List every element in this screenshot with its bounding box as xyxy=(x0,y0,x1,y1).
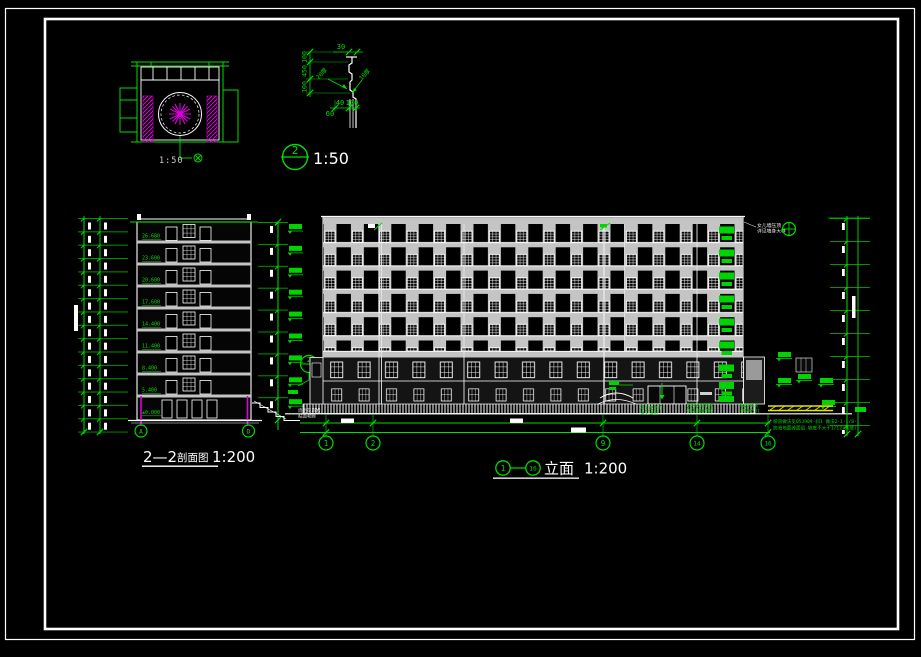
stair-core xyxy=(162,225,217,419)
molding-profile xyxy=(346,57,357,128)
left-annex xyxy=(310,358,323,405)
elevation-axis-to: 16 xyxy=(529,466,537,473)
elevation-title-scale: 1:200 xyxy=(584,460,627,478)
left-base-note-1: 烧毛花岗岩 xyxy=(298,407,321,414)
base-note-c2: 详见05J1 xyxy=(740,408,760,415)
dim-left-1: 450 xyxy=(301,65,309,77)
cad-sheet: 1:50 30 100 450 100 xyxy=(0,0,921,657)
dim-left-0: 100 xyxy=(301,51,309,63)
section-drawing: 26.680 23.600 20.600 17.600 14.400 11.40… xyxy=(128,214,318,437)
grid-bubble-9: 9 xyxy=(601,439,606,448)
section-right-dims xyxy=(258,219,304,430)
grid-bubble-14: 14 xyxy=(693,441,701,448)
level-label: 17.600 xyxy=(142,300,160,306)
dim-bottom-a: 40 xyxy=(336,99,344,107)
cad-drawing-canvas: 1:50 30 100 450 100 xyxy=(0,0,921,657)
base-note-b1: 水泥砂浆坡道 xyxy=(686,402,713,409)
parapet-note: 女儿墙压顶 详见墙身大样 xyxy=(744,222,796,236)
dim-bottom-b: 100 xyxy=(346,99,359,107)
dim-left-2: 100 xyxy=(301,81,309,93)
base-note-c1: 散水做法 xyxy=(740,402,758,409)
molding-dims: 30 100 450 100 40 100 60 20厚 10厚 xyxy=(301,43,373,118)
parapet-note-line2: 详见墙身大样 xyxy=(757,228,786,235)
level-label: ±0.000 xyxy=(142,410,160,416)
hatch-band-right xyxy=(207,96,217,142)
dim-text-blob xyxy=(571,428,586,433)
level-label: 14.400 xyxy=(142,322,160,328)
molding-label-right: 10厚 xyxy=(358,68,372,82)
dim-text-blob xyxy=(510,419,523,424)
parapet-note-line1: 女儿墙压顶 xyxy=(757,222,781,229)
bottom-dims: 1 2 9 14 16 xyxy=(300,414,775,450)
level-label: 20.600 xyxy=(142,278,160,284)
left-base-note-2: 贴面勒脚 xyxy=(298,413,316,420)
dim-text-blob xyxy=(341,419,354,424)
grid-bubble-1: 1 xyxy=(324,439,329,448)
dim-bottom-c: 60 xyxy=(326,110,334,118)
ramp-note-2: 防滑地面砖面层 坡度不大于1/12(残坡) xyxy=(773,425,857,432)
elevation-title: 1 16 立面 1:200 xyxy=(493,460,627,479)
hatch-band-left xyxy=(143,96,153,142)
grid-bubble-2: 2 xyxy=(371,439,376,448)
elevation-title-text: 立面 xyxy=(544,460,574,478)
level-label: 23.600 xyxy=(142,256,160,262)
callout-number: 2 xyxy=(292,144,299,157)
detail-callout: 2 1:50 xyxy=(281,144,349,170)
plan-scale-label: 1:50 xyxy=(159,156,183,166)
section-title-cn: 剖面图 xyxy=(177,451,209,464)
level-label: 26.680 xyxy=(142,234,160,240)
callout-scale: 1:50 xyxy=(313,149,349,168)
base-note-a1: 花岗岩台阶 xyxy=(640,404,663,411)
elevation-axis-from: 1 xyxy=(501,464,506,473)
level-label: 8.400 xyxy=(142,366,157,372)
section-title-scale: 1:200 xyxy=(212,448,255,466)
parapet-band xyxy=(323,217,743,224)
base-note-b2: 详见建施详图 xyxy=(686,408,713,415)
left-dimension-strip xyxy=(74,216,128,435)
dim-top: 30 xyxy=(337,43,345,51)
overall-dim-text-blob xyxy=(74,305,78,331)
mid-band xyxy=(323,351,743,358)
section-axis-bubbles: A D xyxy=(135,425,255,437)
upper-floors xyxy=(323,224,743,351)
level-label: 5.400 xyxy=(142,388,157,394)
grid-bubbles: 1 2 9 14 16 xyxy=(319,436,775,450)
section-title: 2—2 剖面图 1:200 xyxy=(142,448,255,467)
molding-detail: 30 100 450 100 40 100 60 20厚 10厚 xyxy=(301,43,373,128)
elevation-right-dims xyxy=(828,216,870,437)
base-note-a2: 详见详图 xyxy=(640,410,658,417)
section-title-num: 2—2 xyxy=(143,448,177,466)
axis-bubble-a: A xyxy=(139,428,143,436)
ramp-note-1: 坡道做法见05J909-斜1 做法2-1-1/8-1 xyxy=(773,418,860,425)
right-annex xyxy=(744,357,813,404)
elevation-drawing: 女儿墙压顶 详见墙身大样 xyxy=(285,216,870,450)
overall-dim-text-blob xyxy=(852,296,856,318)
plan-detail: 1:50 xyxy=(120,62,238,166)
grid-bubble-16: 16 xyxy=(764,441,772,448)
level-label: 11.400 xyxy=(142,344,160,350)
axis-bubble-b: D xyxy=(247,428,251,436)
lower-window-row-1 xyxy=(323,362,743,379)
